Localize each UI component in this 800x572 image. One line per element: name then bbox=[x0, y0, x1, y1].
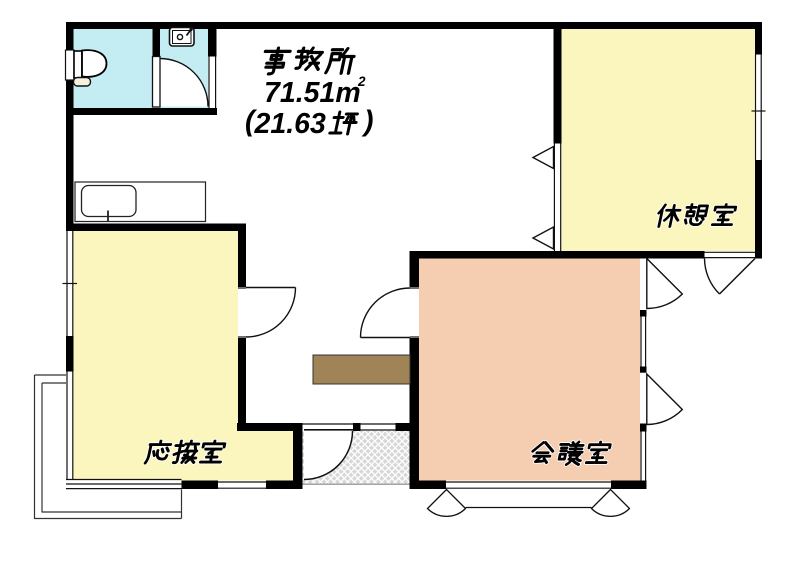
svg-text:71.51m: 71.51m bbox=[264, 77, 361, 109]
svg-text:2: 2 bbox=[357, 74, 366, 89]
svg-text:21.63: 21.63 bbox=[254, 108, 326, 140]
